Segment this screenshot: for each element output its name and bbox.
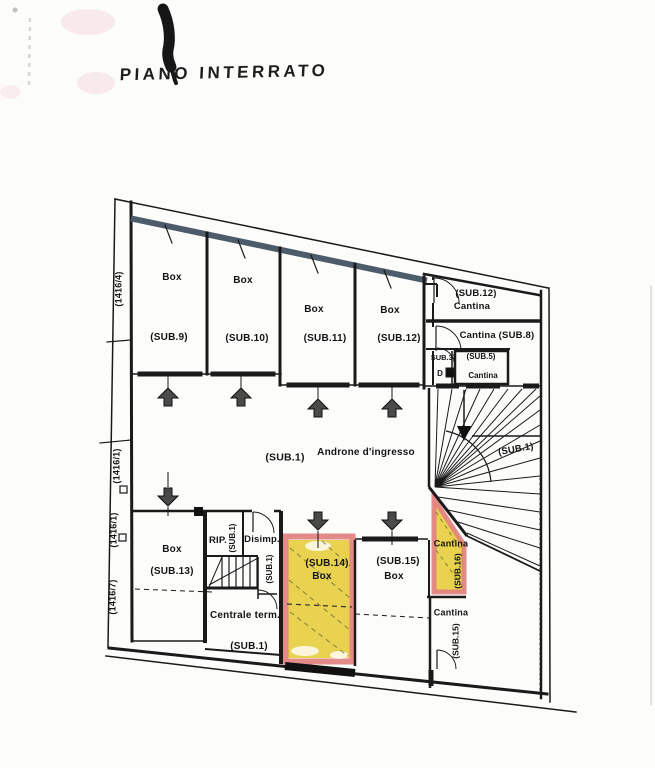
room-label-cantina16: Cantina <box>434 539 468 548</box>
room-label-cantina8: Cantina (SUB.8) <box>460 331 535 341</box>
room-label-cantina15: Cantina <box>434 608 468 617</box>
room-sub-cantina12: (SUB.12) <box>455 289 496 299</box>
room-label-box11: Box <box>304 305 324 316</box>
room-label-androne: Androne d'ingresso <box>317 448 415 459</box>
room-sub-box14: (SUB.14) <box>305 559 348 570</box>
room-label-box10: Box <box>233 276 253 287</box>
room-label-cantina5: Cantina <box>468 372 497 380</box>
room-sub-box13: (SUB.13) <box>150 567 193 578</box>
room-label-box15: Box <box>384 572 404 583</box>
room-label-box9: Box <box>162 273 182 284</box>
room-sub-box9: (SUB.9) <box>150 333 188 344</box>
room-sub-rip: (SUB.1) <box>229 524 237 553</box>
room-label-rip: RIP. <box>209 536 227 546</box>
room-sub-sub3: SUB.3) <box>431 354 456 362</box>
room-label-box13: Box <box>162 545 182 556</box>
room-sub-centrale: (SUB.1) <box>230 642 268 653</box>
room-sub-androne: (SUB.1) <box>265 452 304 463</box>
room-sub-sub5: (SUB.5) <box>467 353 496 361</box>
room-label-cantina12: Cantina <box>454 302 490 312</box>
scanned-floor-plan-page: PIANO INTERRATO (1416/4) (1416/1) (1416/… <box>0 0 655 768</box>
room-sub-box10: (SUB.10) <box>225 334 268 345</box>
room-sub-box12: (SUB.12) <box>377 334 420 345</box>
room-label-dis: D <box>437 370 443 378</box>
room-sub-cantina16: (SUB.16) <box>454 553 463 588</box>
highlight-sub14 <box>286 537 353 662</box>
room-sub-disimp: (SUB.1) <box>266 555 274 584</box>
room-label-centrale: Centrale term. <box>210 611 280 622</box>
room-sub-box15: (SUB.15) <box>376 557 419 568</box>
room-label-disimp: Disimp. <box>244 535 280 545</box>
parcel-label-1416-4: (1416/4) <box>114 271 123 306</box>
room-sub-cantina15: (SUB.15) <box>452 623 461 658</box>
wall-under-sub14 <box>285 666 355 673</box>
parcel-label-1416-1a: (1416/1) <box>112 448 121 483</box>
parcel-label-1416-1b: (1416/1) <box>109 512 118 547</box>
floor-plan-drawing <box>0 0 655 768</box>
parcel-label-1416-7: (1416/7) <box>108 579 117 614</box>
room-sub-box11: (SUB.11) <box>304 334 347 345</box>
room-label-box14: Box <box>312 572 332 583</box>
room-label-box12: Box <box>380 306 400 317</box>
